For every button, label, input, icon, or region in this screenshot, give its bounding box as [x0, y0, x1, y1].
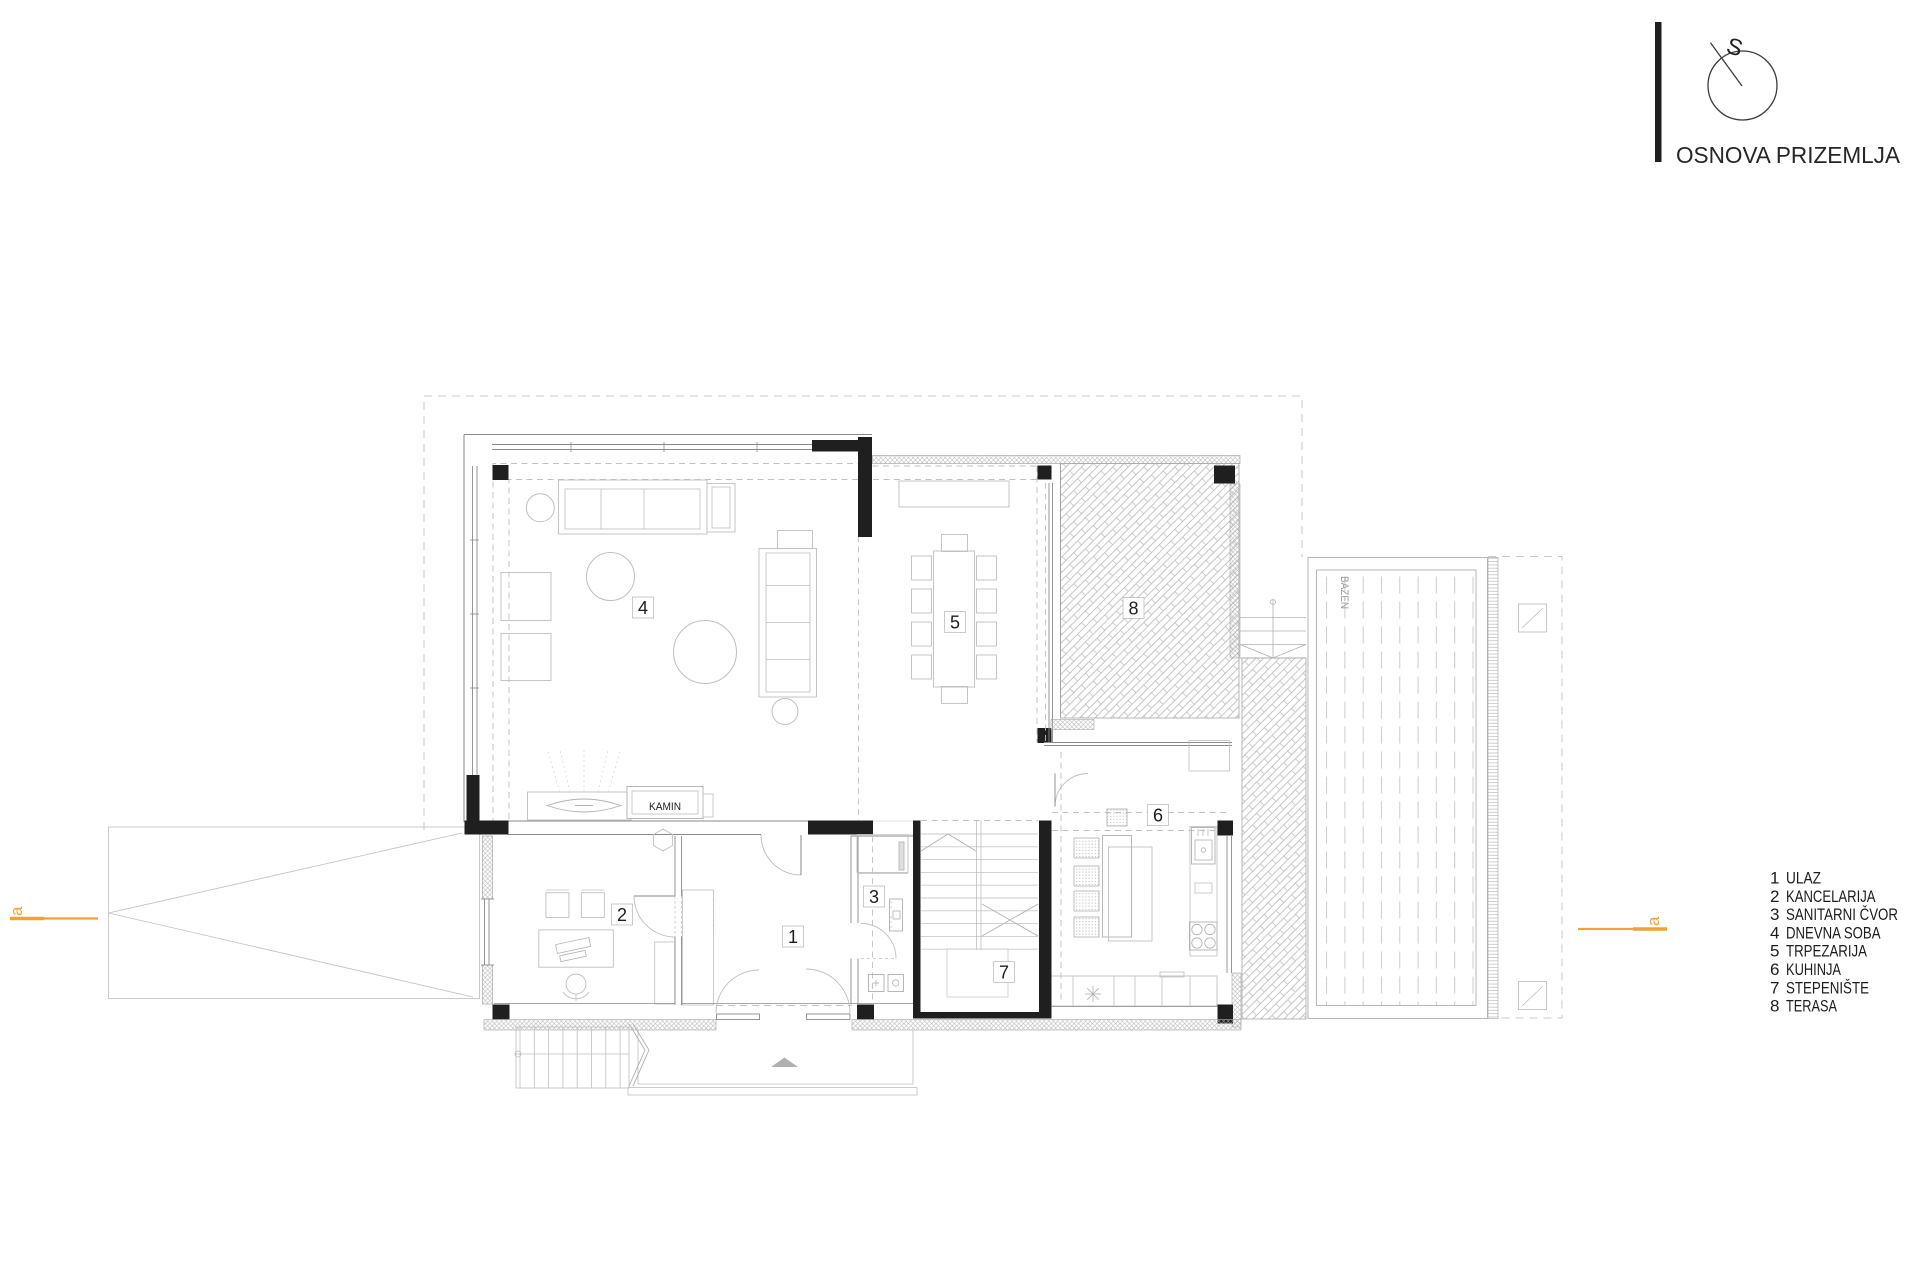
- svg-text:a: a: [7, 906, 26, 916]
- svg-text:8: 8: [1770, 997, 1779, 1016]
- svg-text:BAZEN: BAZEN: [1338, 576, 1350, 609]
- svg-text:4: 4: [1770, 923, 1779, 942]
- svg-text:KUHINJA: KUHINJA: [1786, 960, 1841, 979]
- svg-text:a: a: [1644, 916, 1663, 926]
- svg-text:SANITARNI ČVOR: SANITARNI ČVOR: [1786, 905, 1898, 924]
- svg-text:7: 7: [1770, 978, 1779, 997]
- svg-text:5: 5: [950, 612, 960, 632]
- svg-text:DNEVNA SOBA: DNEVNA SOBA: [1786, 923, 1881, 942]
- svg-text:ULAZ: ULAZ: [1786, 869, 1821, 888]
- svg-text:KAMIN: KAMIN: [649, 801, 681, 813]
- svg-text:2: 2: [617, 905, 627, 925]
- svg-text:8: 8: [1128, 598, 1138, 618]
- svg-text:TERASA: TERASA: [1786, 997, 1837, 1016]
- svg-text:3: 3: [1770, 905, 1779, 924]
- svg-text:3: 3: [869, 887, 879, 907]
- svg-text:6: 6: [1770, 960, 1779, 979]
- svg-text:1: 1: [1770, 869, 1779, 888]
- svg-text:KANCELARIJA: KANCELARIJA: [1786, 887, 1876, 906]
- svg-text:6: 6: [1153, 805, 1163, 825]
- svg-text:STEPENIŠTE: STEPENIŠTE: [1786, 978, 1869, 997]
- svg-text:4: 4: [638, 598, 648, 618]
- svg-text:1: 1: [788, 927, 798, 947]
- svg-text:7: 7: [999, 962, 1009, 982]
- svg-text:TRPEZARIJA: TRPEZARIJA: [1786, 942, 1868, 961]
- svg-text:2: 2: [1770, 887, 1779, 906]
- svg-text:5: 5: [1770, 942, 1779, 961]
- svg-text:OSNOVA PRIZEMLJA: OSNOVA PRIZEMLJA: [1676, 142, 1901, 168]
